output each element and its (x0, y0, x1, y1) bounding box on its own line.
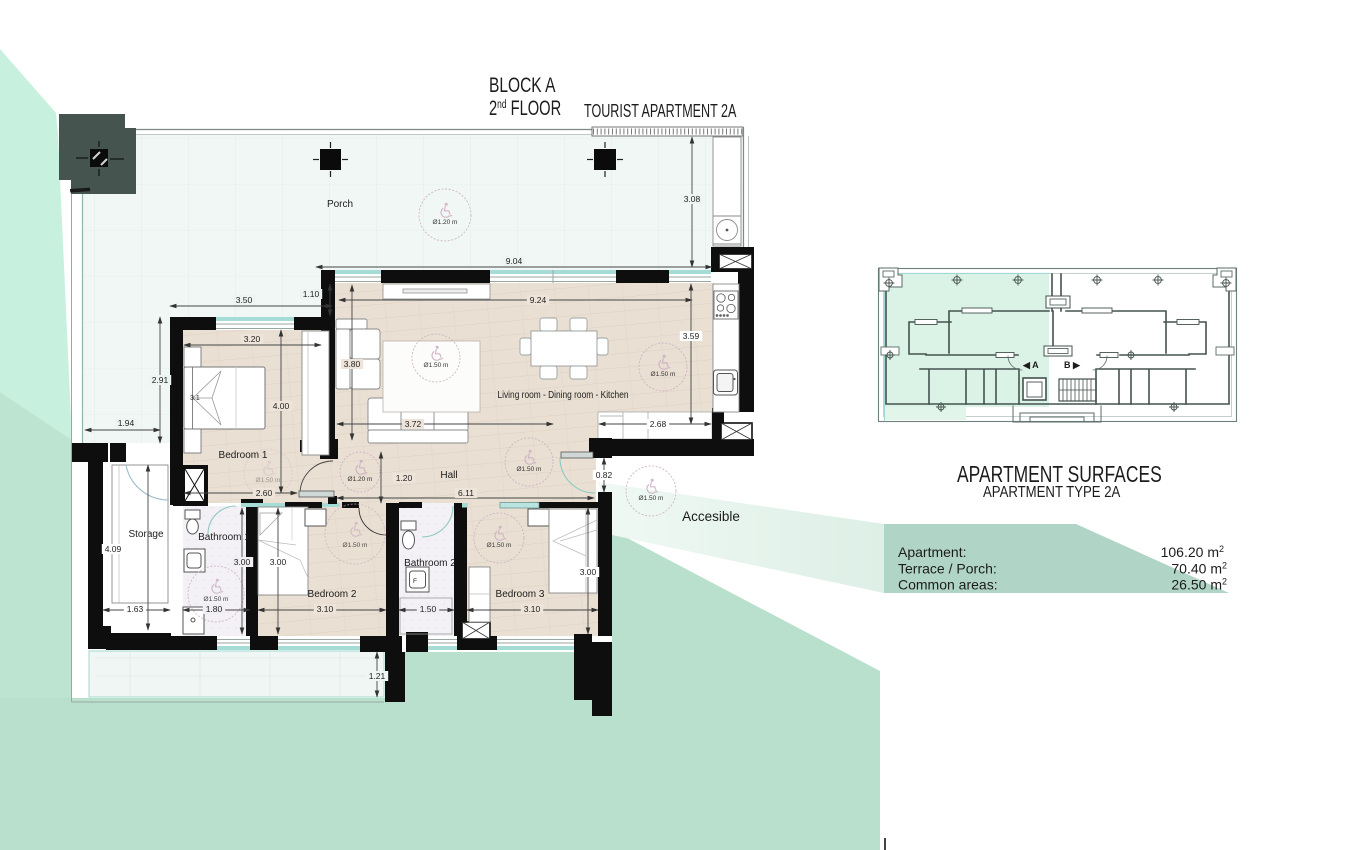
svg-text:3.10: 3.10 (317, 604, 334, 614)
svg-text:26.50 m2: 26.50 m2 (1171, 577, 1227, 593)
svg-text:Apartment:: Apartment: (898, 544, 966, 560)
svg-text:Ø1.20 m: Ø1.20 m (433, 219, 458, 226)
svg-text:Porch: Porch (327, 199, 353, 210)
svg-text:Ø1.50 m: Ø1.50 m (343, 542, 368, 549)
svg-text:3.59: 3.59 (683, 331, 700, 341)
svg-text:70.40 m2: 70.40 m2 (1171, 561, 1227, 577)
svg-text:3.50: 3.50 (236, 295, 253, 305)
svg-text:BLOCK A: BLOCK A (489, 73, 556, 97)
svg-text:Ø1.50 m: Ø1.50 m (651, 371, 676, 378)
svg-text:3.00: 3.00 (234, 557, 251, 567)
svg-text:Ø1.20 m: Ø1.20 m (348, 476, 373, 483)
svg-text:1.20: 1.20 (396, 473, 413, 483)
svg-text:4.00: 4.00 (273, 401, 290, 411)
svg-text:Ø1.50 m: Ø1.50 m (487, 542, 512, 549)
svg-text:Terrace / Porch:: Terrace / Porch: (898, 561, 997, 577)
svg-text:3.08: 3.08 (684, 194, 701, 204)
svg-text:3.80: 3.80 (344, 359, 361, 369)
svg-text:Bathroom 2: Bathroom 2 (404, 558, 456, 569)
svg-text:1.94: 1.94 (118, 418, 135, 428)
svg-text:Living room - Dining room - Ki: Living room - Dining room - Kitchen (498, 390, 629, 401)
svg-text:APARTMENT TYPE 2A: APARTMENT TYPE 2A (983, 484, 1121, 501)
svg-text:Ø1.50 m: Ø1.50 m (256, 477, 281, 484)
svg-text:Ø1.50 m: Ø1.50 m (204, 596, 229, 603)
svg-text:Bedroom 1: Bedroom 1 (219, 450, 268, 461)
svg-text:Common areas:: Common areas: (898, 577, 998, 593)
svg-text:Bedroom 3: Bedroom 3 (496, 589, 545, 600)
svg-text:3.00: 3.00 (270, 557, 287, 567)
svg-text:Accesible: Accesible (682, 509, 740, 524)
svg-text:1.10: 1.10 (303, 289, 320, 299)
svg-text:Bathroom 1: Bathroom 1 (198, 532, 250, 543)
svg-text:6.11: 6.11 (458, 488, 474, 498)
svg-text:3.72: 3.72 (405, 419, 422, 429)
svg-text:1.21: 1.21 (369, 671, 386, 681)
svg-text:106.20 m2: 106.20 m2 (1161, 544, 1224, 560)
svg-text:Ø1.50 m: Ø1.50 m (424, 362, 449, 369)
svg-text:F: F (413, 578, 417, 585)
svg-text:1.80: 1.80 (206, 604, 223, 614)
svg-text:Hall: Hall (440, 470, 457, 481)
svg-text:1.50: 1.50 (420, 604, 437, 614)
svg-text:3.10: 3.10 (524, 604, 541, 614)
svg-text:Bedroom 2: Bedroom 2 (308, 589, 357, 600)
svg-text:9.04: 9.04 (506, 256, 523, 266)
svg-text:0.82: 0.82 (596, 470, 613, 480)
svg-text:9.24: 9.24 (530, 295, 547, 305)
svg-text:Ø1.50 m: Ø1.50 m (517, 466, 542, 473)
svg-text:2.91: 2.91 (152, 375, 169, 385)
svg-text:2.60: 2.60 (256, 488, 273, 498)
svg-text:3.1: 3.1 (190, 395, 200, 402)
svg-text:◀ A: ◀ A (1022, 360, 1039, 370)
svg-text:Storage: Storage (128, 529, 163, 540)
svg-text:2.68: 2.68 (650, 419, 667, 429)
svg-text:B ▶: B ▶ (1064, 360, 1081, 370)
svg-text:4.09: 4.09 (105, 544, 122, 554)
svg-text:3.00: 3.00 (580, 567, 597, 577)
svg-text:TOURIST APARTMENT 2A: TOURIST APARTMENT 2A (584, 102, 737, 122)
svg-text:Ø1.50 m: Ø1.50 m (639, 495, 664, 502)
svg-text:3.20: 3.20 (244, 334, 261, 344)
svg-text:1.63: 1.63 (127, 604, 144, 614)
